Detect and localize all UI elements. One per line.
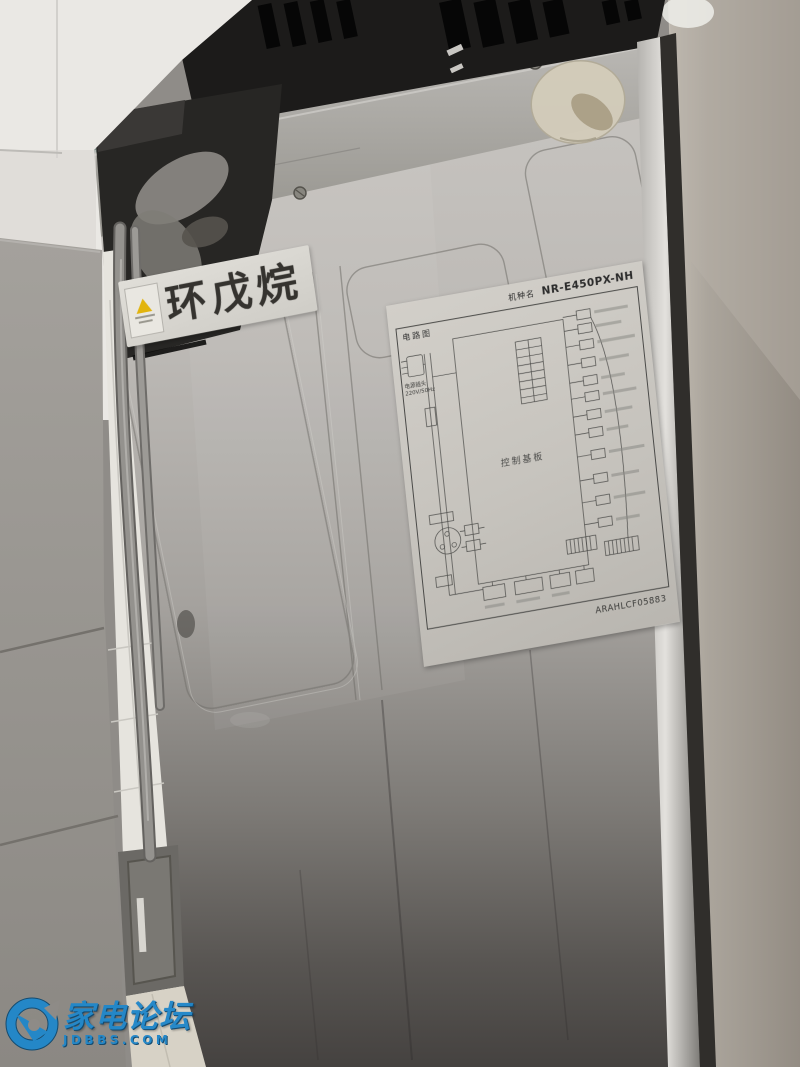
watermark-site-name: 家电论坛: [63, 1002, 191, 1033]
watermark-site-domain: JDBBS.COM: [63, 1034, 191, 1046]
watermark-logo-icon: [4, 996, 60, 1052]
drawer-panel: [128, 856, 175, 984]
photo-fridge-back: 环戊烷 机种名 NR-E450PX-NH 电路图 控制基板 ARAHLCF058…: [0, 0, 800, 1067]
control-board-outline: [453, 319, 589, 584]
warning-triangle-icon: [135, 297, 153, 314]
screw: [294, 187, 306, 199]
pin-grid-bottom: [544, 313, 640, 562]
watermark: 家电论坛 JDBBS.COM: [4, 996, 191, 1052]
micro-label-dashes: [456, 305, 660, 607]
drawer-cabinet: [118, 845, 184, 996]
plug-annotations: 电源插头 220V/50Hz: [404, 378, 435, 398]
warning-text-line: [139, 319, 153, 324]
power-plug-symbol: [401, 354, 427, 378]
pin-grid-top: [515, 338, 547, 404]
watermark-texts: 家电论坛 JDBBS.COM: [63, 1002, 191, 1046]
scene-canvas: [0, 0, 800, 1067]
bottom-components: [436, 550, 595, 608]
under-cabinet-shadow: [0, 150, 96, 250]
compressor-symbol: [429, 506, 487, 557]
power-bus-lines: [424, 348, 483, 595]
circuit-schematic: 电源插头 220V/50Hz: [395, 286, 669, 630]
model-name-label: 机种名: [508, 288, 536, 304]
wiring-diagram-label: 机种名 NR-E450PX-NH 电路图 控制基板 ARAHLCF05883: [386, 261, 680, 667]
